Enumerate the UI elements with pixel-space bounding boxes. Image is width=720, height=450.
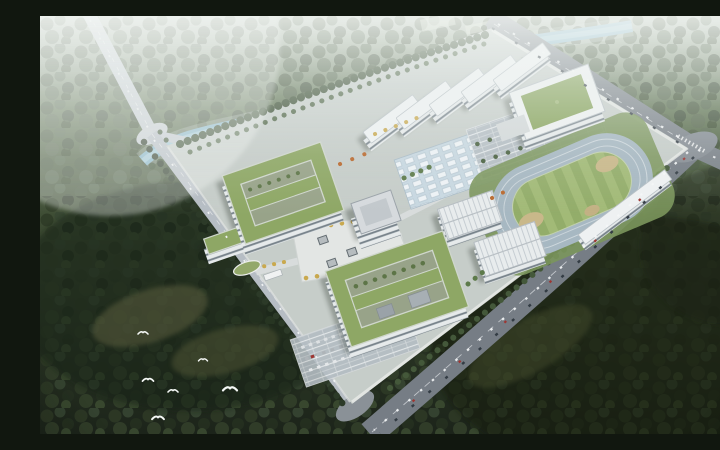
vignette — [40, 16, 720, 434]
aerial-campus-rendering — [40, 16, 720, 434]
rendering-canvas — [40, 16, 720, 434]
